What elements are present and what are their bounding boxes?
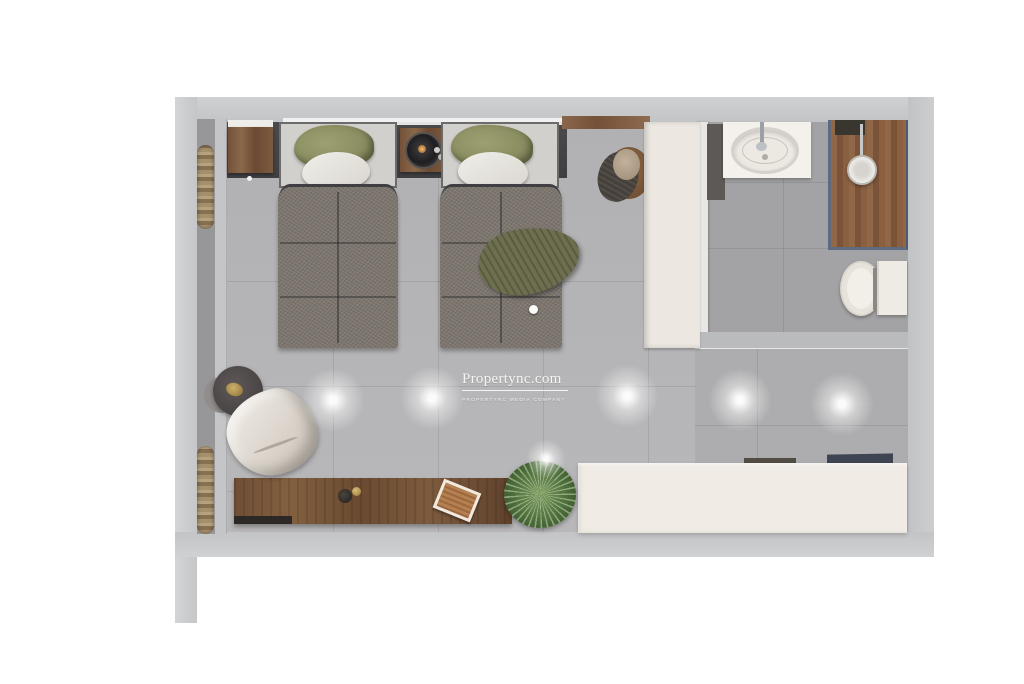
- light-glow: [301, 368, 365, 432]
- wardrobe-bottom: [578, 463, 907, 533]
- tile-grout-line: [708, 248, 828, 249]
- towel-beige: [613, 149, 640, 180]
- toilet-cistern: [877, 261, 907, 315]
- wardrobe-tall: [644, 122, 700, 348]
- watermark-title: Propertync.com: [462, 371, 584, 388]
- curtain-top: [197, 145, 214, 229]
- light-glow: [526, 439, 566, 479]
- bathroom-bottom-wall: [695, 332, 908, 348]
- nightstand-left-shelf: [228, 120, 273, 127]
- light-glow: [708, 368, 772, 432]
- decor-cup: [434, 147, 440, 153]
- wall-right: [908, 97, 934, 556]
- sink-drain: [762, 154, 768, 160]
- armchair-seam: [253, 436, 298, 455]
- toilet-seat-hinge: [873, 268, 877, 310]
- watermark-divider: [462, 390, 568, 391]
- watermark-tagline: PROPERTYNC MEDIA COMPANY: [462, 397, 566, 402]
- decor-gold-ball: [352, 487, 361, 496]
- nightstand-handle: [247, 176, 252, 181]
- blanket-seam: [442, 296, 559, 298]
- watermark: Propertync.com PROPERTYNC MEDIA COMPANY: [462, 371, 584, 409]
- blanket-seam: [280, 296, 395, 298]
- floorplan-render: Propertync.com PROPERTYNC MEDIA COMPANY: [0, 0, 1024, 684]
- wall-bottom: [175, 532, 934, 557]
- light-glow: [595, 364, 659, 428]
- decor-bowl: [338, 489, 352, 503]
- inner-wall-left: [215, 119, 227, 534]
- desk-notch: [234, 516, 292, 524]
- sink-basin-rim: [742, 137, 788, 164]
- light-glow: [810, 372, 874, 436]
- blanket-seam: [337, 192, 339, 343]
- decor-ball: [529, 305, 538, 314]
- record-player-center: [418, 145, 426, 153]
- curtain-bottom: [197, 446, 214, 534]
- faucet-base: [756, 142, 767, 151]
- shower-wood-floor: [828, 120, 908, 250]
- blanket-seam: [280, 242, 395, 244]
- tile-grout-line: [708, 182, 828, 183]
- tile-grout-line: [783, 178, 784, 332]
- shower-head: [847, 155, 877, 185]
- light-glow: [400, 366, 464, 430]
- nightstand-left: [228, 127, 273, 173]
- bed1-blanket: [278, 184, 398, 348]
- sink-basin: [731, 127, 799, 174]
- wood-shelf: [562, 116, 650, 129]
